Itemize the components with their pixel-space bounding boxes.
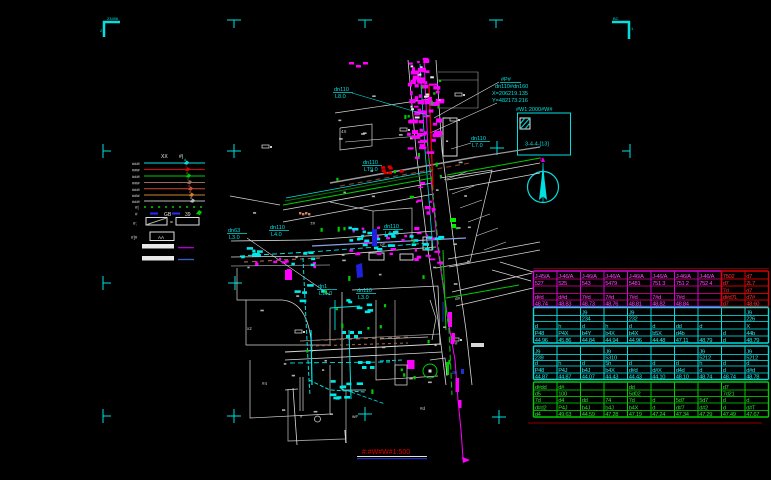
- svg-text:###l: ###l: [132, 187, 140, 192]
- svg-text:L7.0: L7.0: [472, 143, 483, 149]
- svg-text:d: d: [699, 324, 702, 330]
- svg-text:d#d: d#d: [629, 368, 638, 374]
- svg-text:d#2: d#2: [699, 405, 708, 411]
- svg-text:48.82: 48.82: [652, 301, 665, 307]
- svg-text:5d7: 5d7: [699, 398, 708, 404]
- svg-text:=: =: [170, 220, 173, 226]
- svg-text:752 4: 752 4: [699, 281, 713, 287]
- svg-text:LT9.0: LT9.0: [364, 167, 378, 173]
- svg-text:7#d: 7#d: [652, 295, 661, 301]
- svg-text:47.11: 47.11: [676, 338, 689, 344]
- svg-text:BC: BC: [613, 16, 619, 21]
- svg-text:P48: P48: [535, 368, 544, 374]
- svg-text:49.63: 49.63: [558, 412, 571, 418]
- svg-text:b4J: b4J: [605, 405, 614, 411]
- svg-text:b4X: b4X: [605, 331, 615, 337]
- svg-text:dn110: dn110: [270, 225, 285, 231]
- svg-text:d: d: [535, 324, 538, 330]
- svg-text:dn110: dn110: [357, 288, 372, 294]
- svg-text:dn1: dn1: [318, 284, 327, 290]
- svg-text:7d: 7d: [723, 288, 729, 294]
- svg-text:###l: ###l: [132, 199, 140, 204]
- svg-text:7#: 7#: [310, 221, 316, 226]
- svg-text:b4X: b4X: [629, 405, 639, 411]
- svg-text:P4X: P4X: [558, 331, 568, 337]
- svg-text:J-46/A: J-46/A: [582, 274, 597, 280]
- svg-text:d7: d7: [746, 288, 752, 294]
- svg-text:2L7: 2L7: [746, 281, 755, 287]
- svg-text:#|: #|: [179, 154, 183, 160]
- svg-text:4X: 4X: [341, 129, 347, 134]
- svg-text:dd: dd: [629, 385, 635, 391]
- svg-text:d: d: [652, 405, 655, 411]
- svg-text:J-46/A: J-46/A: [676, 274, 691, 280]
- svg-text:d: d: [699, 368, 702, 374]
- svg-text:7#d: 7#d: [605, 295, 614, 301]
- svg-text:d: d: [652, 324, 655, 330]
- svg-text:P4J: P4J: [558, 368, 567, 374]
- svg-text:44.43: 44.43: [629, 374, 642, 380]
- svg-text:J-46/A: J-46/A: [699, 274, 714, 280]
- svg-text:5d7: 5d7: [676, 398, 685, 404]
- svg-text:d7: d7: [723, 385, 729, 391]
- svg-text:d: d: [652, 398, 655, 404]
- svg-text:J-46/A: J-46/A: [652, 274, 667, 280]
- svg-text:48.74: 48.74: [535, 301, 549, 307]
- svg-text:44.59: 44.59: [582, 412, 595, 418]
- svg-text:b4J: b4J: [582, 368, 591, 374]
- svg-text:L4.10: L4.10: [385, 231, 399, 237]
- svg-text:d: d: [652, 361, 655, 367]
- svg-text:d#d7L: d#d7L: [723, 295, 739, 301]
- svg-text:dn110: dn110: [363, 160, 378, 166]
- svg-text:#:#W#W#1:500: #:#W#W#1:500: [362, 449, 410, 456]
- svg-text:d: d: [186, 171, 188, 175]
- svg-text:48.84: 48.84: [676, 301, 690, 307]
- svg-text:d: d: [723, 361, 726, 367]
- svg-text:##l#: ##l#: [132, 193, 140, 198]
- svg-text:J-46/A: J-46/A: [629, 274, 644, 280]
- svg-text:d7: d7: [746, 274, 752, 280]
- svg-text:d6: d6: [452, 370, 458, 375]
- svg-text:d: d: [629, 324, 632, 330]
- svg-text:226: 226: [746, 316, 755, 322]
- svg-text:234: 234: [582, 316, 592, 322]
- svg-text:47.67: 47.67: [746, 412, 759, 418]
- svg-text:48.78: 48.78: [746, 374, 759, 380]
- svg-text:48.79: 48.79: [746, 338, 759, 344]
- svg-text:d: d: [723, 398, 726, 404]
- svg-text:J-46/A: J-46/A: [558, 274, 573, 280]
- svg-text:d: d: [189, 190, 191, 194]
- svg-text:47.49: 47.49: [723, 412, 736, 418]
- svg-text:#P#: #P#: [501, 77, 512, 83]
- svg-text:###l: ###l: [132, 161, 140, 166]
- svg-text:525: 525: [558, 281, 567, 287]
- svg-text:44b: 44b: [746, 331, 755, 337]
- svg-text:5479: 5479: [605, 281, 617, 287]
- svg-text:d#: d#: [455, 296, 461, 301]
- svg-text:d: d: [629, 361, 632, 367]
- svg-text:b4X: b4X: [605, 368, 615, 374]
- svg-text:L3.0: L3.0: [229, 235, 240, 241]
- svg-text:b4Y: b4Y: [582, 331, 592, 337]
- svg-text:48.73: 48.73: [582, 301, 595, 307]
- svg-text:d#d: d#d: [535, 295, 544, 301]
- svg-text:d: d: [187, 178, 189, 182]
- svg-text:d: d: [184, 158, 186, 162]
- svg-text:P48: P48: [535, 331, 544, 337]
- svg-text:dn110: dn110: [471, 136, 486, 142]
- svg-text:#4: #4: [262, 381, 268, 386]
- svg-text:d7: d7: [723, 281, 729, 287]
- svg-text:d: d: [535, 361, 538, 367]
- svg-text:d7: d7: [723, 301, 729, 307]
- svg-text:d5: d5: [535, 391, 541, 397]
- svg-text:d4b: d4b: [676, 331, 685, 337]
- svg-text:L3.0: L3.0: [358, 295, 369, 301]
- svg-text:7#d: 7#d: [582, 295, 591, 301]
- svg-text:d#7: d#7: [676, 405, 685, 411]
- svg-text:dn110#dn160: dn110#dn160: [495, 84, 528, 90]
- svg-text:#W1:2000#W#: #W1:2000#W#: [516, 107, 553, 113]
- svg-text:c#: c#: [380, 242, 385, 247]
- svg-text:d#T: d#T: [746, 405, 756, 411]
- svg-text:d#d2: d#d2: [535, 405, 547, 411]
- svg-text:d: d: [676, 361, 679, 367]
- svg-text:###l: ###l: [132, 174, 140, 179]
- svg-text:XX: XX: [161, 154, 168, 160]
- svg-text:L11.0: L11.0: [319, 291, 332, 297]
- svg-text:b5X: b5X: [652, 331, 662, 337]
- svg-text:d: d: [723, 338, 726, 344]
- svg-text:X: X: [746, 324, 750, 330]
- svg-text:d: d: [746, 361, 749, 367]
- svg-text:543: 543: [582, 281, 591, 287]
- svg-text:44.84: 44.84: [582, 338, 596, 344]
- svg-text:d#X: d#X: [652, 368, 662, 374]
- svg-text:b4X: b4X: [629, 331, 639, 337]
- svg-text:48.10: 48.10: [676, 374, 689, 380]
- svg-text:dd: dd: [582, 398, 588, 404]
- svg-text:P4J: P4J: [558, 405, 567, 411]
- svg-text:h: h: [605, 324, 608, 330]
- svg-text:d: d: [185, 165, 187, 169]
- svg-text:d: d: [188, 184, 190, 188]
- svg-text:44.94: 44.94: [605, 338, 619, 344]
- svg-text:5481: 5481: [629, 281, 641, 287]
- svg-text:7502: 7502: [723, 274, 735, 280]
- svg-text:48.81: 48.81: [629, 301, 642, 307]
- svg-text:44.07: 44.07: [582, 374, 595, 380]
- svg-text:44.96: 44.96: [535, 338, 548, 344]
- svg-text:d: d: [723, 331, 726, 337]
- svg-text:w#: w#: [352, 414, 358, 419]
- svg-text:b: b: [540, 157, 543, 163]
- svg-text:h: h: [558, 361, 561, 367]
- svg-text:48.79: 48.79: [699, 338, 712, 344]
- svg-text:48.74: 48.74: [699, 374, 713, 380]
- svg-text:d: d: [723, 368, 726, 374]
- svg-text:751 3: 751 3: [652, 281, 665, 287]
- svg-text:dd: dd: [676, 324, 682, 330]
- svg-text:48.60: 48.60: [746, 301, 759, 307]
- svg-text:44.48: 44.48: [652, 338, 665, 344]
- svg-text:dn110: dn110: [334, 87, 349, 93]
- svg-text:d: d: [723, 405, 726, 411]
- svg-text:#d: #d: [420, 406, 426, 411]
- svg-text:d#d: d#d: [558, 295, 567, 301]
- svg-text:44.10: 44.10: [652, 374, 665, 380]
- svg-text:dn110: dn110: [384, 224, 399, 230]
- svg-text:45.86: 45.86: [558, 338, 571, 344]
- svg-text:d: d: [582, 324, 585, 330]
- svg-text:d4d: d4d: [676, 368, 685, 374]
- svg-text:J-46/A: J-46/A: [605, 274, 620, 280]
- svg-text:751 2: 751 2: [676, 281, 689, 287]
- svg-text:48.74: 48.74: [723, 374, 737, 380]
- svg-text:L4.0: L4.0: [271, 232, 282, 238]
- svg-text:x2: x2: [247, 326, 252, 331]
- svg-text:48.83: 48.83: [558, 301, 571, 307]
- svg-text:d#d: d#d: [746, 368, 755, 374]
- svg-text:#;: #;: [133, 221, 137, 226]
- svg-text:44.96: 44.96: [629, 338, 642, 344]
- svg-text:d: d: [582, 361, 585, 367]
- svg-text:AA: AA: [158, 235, 164, 240]
- svg-text:##l#: ##l#: [132, 168, 140, 173]
- svg-text:47.29: 47.29: [699, 412, 712, 418]
- svg-text:7d21: 7d21: [723, 391, 735, 397]
- svg-text:23456: 23456: [107, 16, 119, 21]
- svg-text:7#d: 7#d: [629, 295, 638, 301]
- svg-text:100: 100: [558, 391, 567, 397]
- svg-text:44.87: 44.87: [535, 374, 548, 380]
- svg-text:527: 527: [535, 281, 544, 287]
- svg-text:5h: 5h: [605, 361, 611, 367]
- svg-text:d7#: d7#: [746, 295, 756, 301]
- svg-text:b4J: b4J: [582, 405, 591, 411]
- svg-text:48.76: 48.76: [605, 301, 618, 307]
- svg-text:dn63: dn63: [228, 228, 240, 234]
- svg-text:47.19: 47.19: [629, 412, 642, 418]
- svg-text:L8.0: L8.0: [335, 94, 346, 100]
- svg-text:47.34: 47.34: [676, 412, 690, 418]
- svg-text:h: h: [558, 324, 561, 330]
- svg-text:44.87: 44.87: [558, 374, 571, 380]
- svg-text:d: d: [190, 196, 192, 200]
- svg-text:X=206219.135: X=206219.135: [492, 91, 528, 97]
- svg-text:7#d: 7#d: [676, 295, 685, 301]
- svg-text:Y=482173.216: Y=482173.216: [492, 98, 528, 104]
- svg-text:44.43: 44.43: [605, 374, 618, 380]
- svg-text:47.24: 47.24: [652, 412, 666, 418]
- svg-text:7d: 7d: [629, 398, 635, 404]
- svg-text:5d02: 5d02: [629, 391, 641, 397]
- svg-text:J-45/A: J-45/A: [535, 274, 550, 280]
- svg-text:232: 232: [629, 316, 638, 322]
- svg-text:d#dd: d#dd: [535, 385, 547, 391]
- svg-text:3-4-4-[13]: 3-4-4-[13]: [525, 142, 549, 148]
- svg-text:d: d: [746, 398, 749, 404]
- svg-text:#|: #|: [135, 205, 139, 210]
- svg-text:47.28: 47.28: [605, 412, 618, 418]
- svg-text:h: h: [699, 361, 702, 367]
- svg-text:##l#: ##l#: [132, 181, 140, 186]
- svg-text:#]#: #]#: [131, 235, 138, 240]
- svg-text:7d: 7d: [535, 398, 541, 404]
